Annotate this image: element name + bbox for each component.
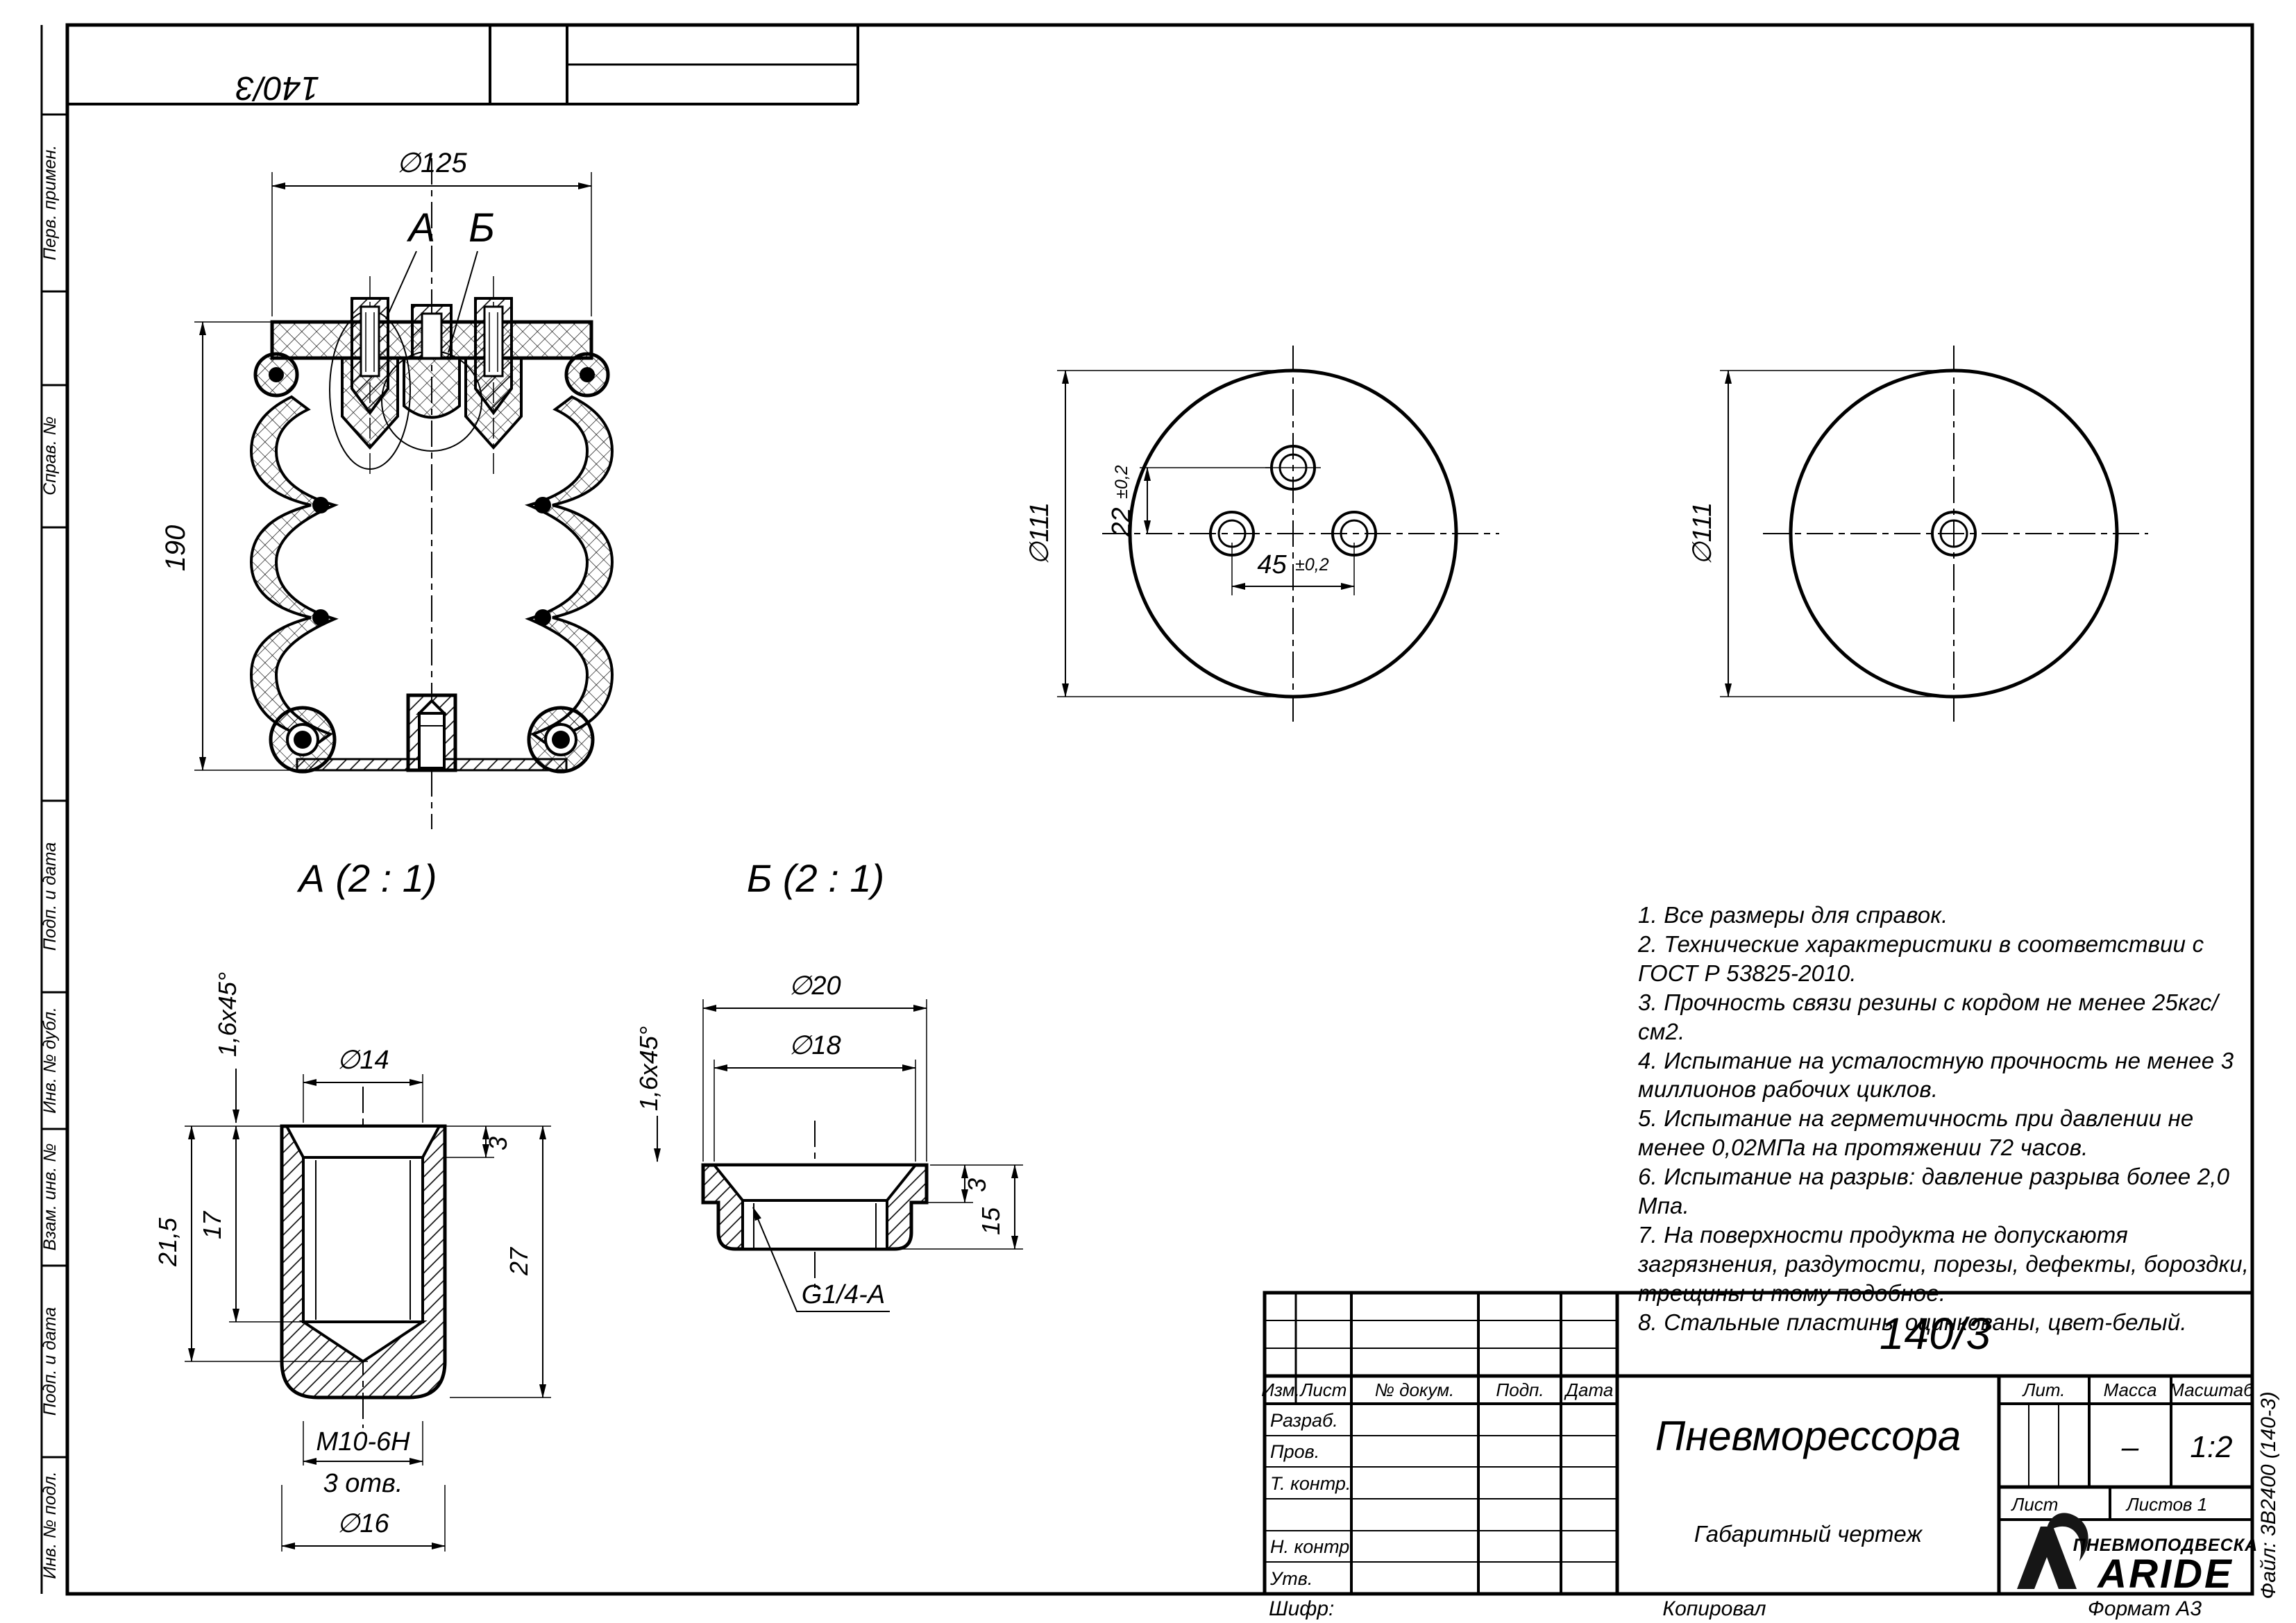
note-line: 7. На поверхности продукта не допускаютя…: [1638, 1221, 2256, 1308]
margin-label: Инв. № подл.: [40, 1471, 60, 1579]
tb-row-razrab: Разраб.: [1270, 1410, 1338, 1431]
drawing-sheet: Перв. примен. Справ. № Подп. и дата Инв.…: [0, 0, 2296, 1623]
top-stamp: 140/3: [67, 25, 858, 106]
drawing-canvas: Перв. примен. Справ. № Подп. и дата Инв.…: [0, 0, 2296, 1623]
margin-label: Подп. и дата: [40, 1307, 60, 1416]
detail-a-view: А (2 : 1) ∅14 1,6x45° 21,5 17 3 27: [153, 856, 551, 1552]
brand-name: ARIDE: [2096, 1552, 2233, 1597]
tb-listov-label: Листов 1: [2125, 1494, 2207, 1515]
dim-dia18: ∅18: [788, 1031, 841, 1060]
note-line: 1. Все размеры для справок.: [1638, 901, 2256, 930]
dim-chamfer-b: 1,6x45°: [634, 1026, 663, 1111]
tb-row-prov: Пров.: [1270, 1441, 1319, 1462]
dim-dia111-bottom-view: ∅111: [1688, 502, 1717, 566]
note-line: 8. Стальные пластины оцинкованы, цвет-бе…: [1638, 1308, 2256, 1337]
tb-list-label: Лист: [2011, 1494, 2059, 1515]
dim-190: 190: [160, 525, 191, 572]
tb-part-name: Пневморессора: [1655, 1413, 1961, 1459]
margin-label: Инв. № дубл.: [40, 1007, 60, 1114]
dim-45: 45: [1257, 550, 1287, 579]
callout-a-label: А: [407, 205, 436, 250]
technical-notes: 1. Все размеры для справок. 2. Техническ…: [1638, 901, 2256, 1337]
margin-label: Взам. инв. №: [40, 1144, 60, 1251]
tb-row-tkontr: Т. контр.: [1270, 1473, 1351, 1494]
dim-dia111-top-view: ∅111: [1025, 502, 1054, 566]
top-stamp-number: 140/3: [236, 69, 319, 106]
dim-dia125: ∅125: [396, 148, 467, 178]
tb-massa-value: –: [2121, 1430, 2139, 1464]
note-line: 6. Испытание на разрыв: давление разрыва…: [1638, 1162, 2256, 1221]
tb-doc-type: Габаритный чертеж: [1694, 1521, 1923, 1547]
footer-shifr: Шифр:: [1269, 1597, 1334, 1620]
detail-b-title: Б (2 : 1): [747, 856, 884, 900]
dim-chamfer-a: 1,6x45°: [213, 972, 242, 1057]
front-view: ∅125 А Б 190: [160, 148, 612, 829]
tb-col-list: Лист: [1299, 1379, 1347, 1400]
tb-col-doc: № докум.: [1375, 1379, 1455, 1400]
tb-row-utv: Утв.: [1269, 1568, 1312, 1589]
note-line: 2. Технические характеристики в соответс…: [1638, 930, 2256, 988]
margin-label: Перв. примен.: [40, 145, 60, 260]
dim-15: 15: [977, 1207, 1005, 1235]
footer-kopiroval: Копировал: [1662, 1597, 1766, 1620]
file-label: Файл: 3В2400 (140-3): [2257, 1391, 2280, 1599]
dim-thread-g14: G1/4-A: [802, 1280, 885, 1309]
dim-21-5: 21,5: [153, 1217, 182, 1267]
bottom-plate-view: ∅111: [1688, 346, 2148, 724]
dim-22-tol: ±0,2: [1112, 465, 1131, 499]
dim-dia14: ∅14: [337, 1046, 389, 1075]
tb-col-podp: Подп.: [1496, 1379, 1544, 1400]
dim-dia16: ∅16: [337, 1509, 389, 1538]
dim-3-a: 3: [484, 1137, 512, 1150]
tb-masshtab-value: 1:2: [2190, 1430, 2232, 1464]
dim-22: 22: [1107, 507, 1136, 537]
dim-3-b: 3: [963, 1178, 991, 1192]
tb-row-nkontr: Н. контр.: [1270, 1536, 1355, 1557]
title-block: Изм. Лист № докум. Подп. Дата Разраб. Пр…: [1261, 1293, 2258, 1597]
margin-label: Подп. и дата: [40, 842, 60, 951]
callout-b-label: Б: [469, 205, 495, 250]
dim-17: 17: [198, 1210, 226, 1239]
tb-col-izm: Изм.: [1261, 1379, 1299, 1400]
tb-massa-label: Масса: [2104, 1379, 2157, 1400]
top-plate-view: ∅111 22 ±0,2 45 ±0,2: [1025, 346, 1499, 724]
dim-dia20: ∅20: [788, 971, 841, 1001]
note-line: 3. Прочность связи резины с кордом не ме…: [1638, 988, 2256, 1046]
dim-holes-count: 3 отв.: [323, 1469, 403, 1498]
dim-thread-m10: M10-6H: [316, 1427, 410, 1456]
detail-a-title: А (2 : 1): [296, 856, 437, 900]
footer-format: Формат А3: [2088, 1597, 2202, 1620]
dim-27: 27: [505, 1246, 533, 1276]
tb-lit-label: Лит.: [2022, 1379, 2066, 1400]
note-line: 4. Испытание на усталостную прочность не…: [1638, 1046, 2256, 1105]
margin-label: Справ. №: [40, 416, 60, 495]
detail-b-view: Б (2 : 1) ∅20 ∅18 1,6x45° 3 15 G1/4-A: [634, 856, 1023, 1311]
dim-45-tol: ±0,2: [1295, 555, 1329, 575]
tb-masshtab-label: Масштаб: [2169, 1379, 2254, 1400]
tb-col-data: Дата: [1564, 1379, 1614, 1400]
note-line: 5. Испытание на герметичность при давлен…: [1638, 1104, 2256, 1162]
